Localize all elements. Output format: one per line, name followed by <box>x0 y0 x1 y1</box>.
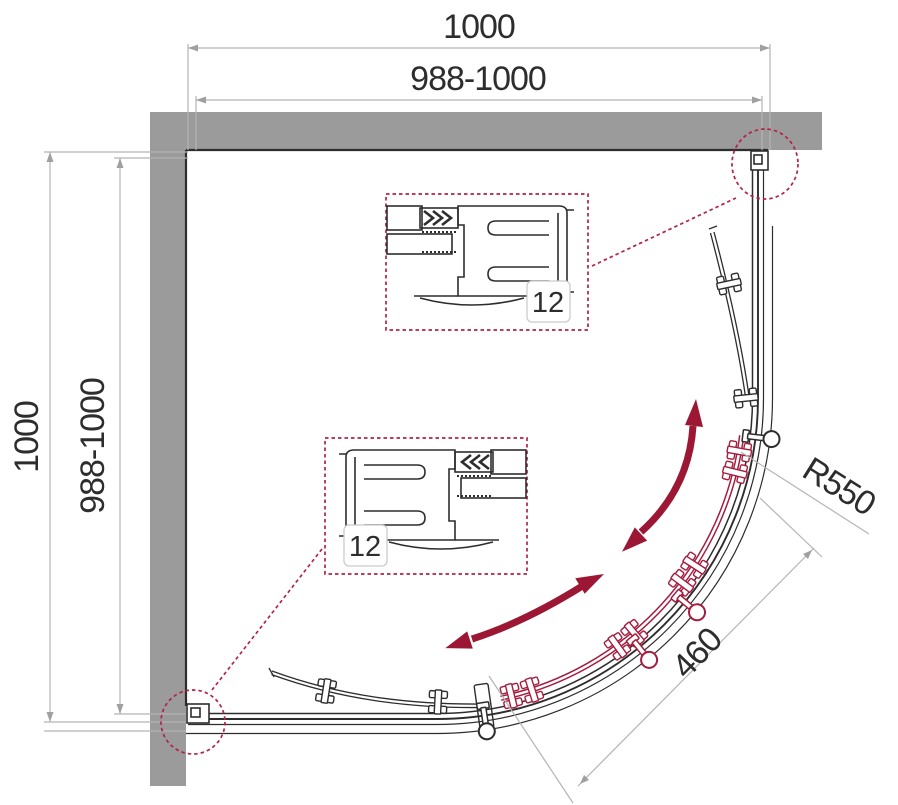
glass-panel-lower <box>269 668 496 740</box>
frame-inner-line <box>188 168 753 714</box>
dimension-radius: R550 <box>741 450 882 534</box>
dim-radius-label: R550 <box>796 450 882 523</box>
glass-panel-upper <box>709 226 759 408</box>
dim-left-adjustable-label: 988-1000 <box>74 378 112 514</box>
frame-outer-line <box>188 150 758 719</box>
diagram-canvas: 1000 988-1000 1000 988-1000 <box>0 0 898 805</box>
shower-enclosure-plan-drawing: 1000 988-1000 1000 988-1000 <box>0 0 898 805</box>
sliding-door-red <box>500 428 781 710</box>
left-wall <box>150 112 186 786</box>
callout-leader-bottom <box>212 549 322 690</box>
bottom-wall-profile <box>187 704 209 723</box>
callout-top-profile: 12 <box>386 129 798 330</box>
top-wall-profile <box>751 151 768 170</box>
door-motion-arrows <box>445 399 703 649</box>
dim-door-opening-label: 460 <box>665 621 730 686</box>
dimension-door-opening: 460 <box>489 498 822 803</box>
callout-label-top: 12 <box>532 287 564 319</box>
top-wall <box>150 112 822 150</box>
callout-label-bottom: 12 <box>349 531 381 563</box>
callout-bottom-profile: 12 <box>161 438 527 754</box>
dim-top-adjustable-label: 988-1000 <box>410 60 546 98</box>
dim-top-overall-label: 1000 <box>443 8 515 46</box>
dim-left-overall-label: 1000 <box>8 401 46 473</box>
walls <box>150 112 822 786</box>
